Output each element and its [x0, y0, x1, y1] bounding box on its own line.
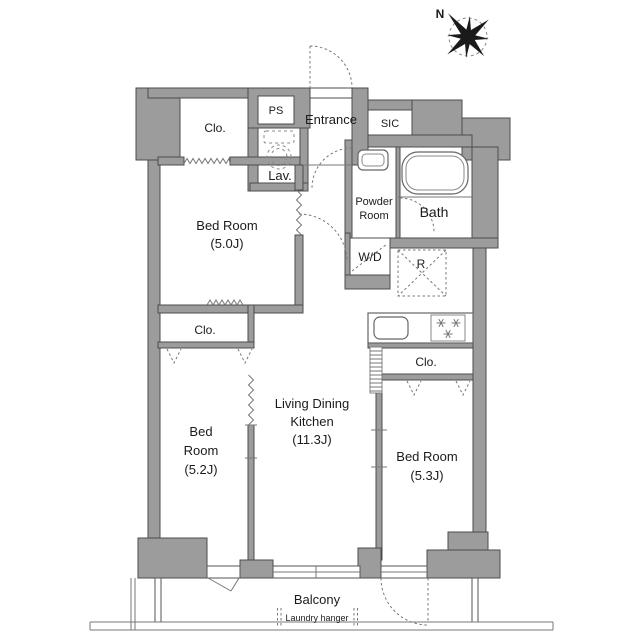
label-lavatory: Lav.	[268, 168, 292, 183]
label-laundry-hanger: Laundry hanger	[285, 613, 348, 623]
label-bedroom2-size: (5.2J)	[184, 462, 217, 477]
wall-segment	[158, 157, 184, 165]
compass-rose: N	[425, 0, 510, 79]
wall-segment	[295, 235, 303, 313]
kitchen-sink	[374, 317, 408, 339]
label-ldk-line1: Living Dining	[275, 396, 349, 411]
entrance-door-arc	[310, 46, 352, 88]
balcony-side-wall-left	[155, 578, 161, 622]
wall-segment	[472, 147, 498, 248]
wall-segment	[240, 560, 273, 578]
label-ldk-line2: Kitchen	[290, 414, 333, 429]
wall-segment	[368, 135, 472, 147]
label-closet-right: Clo.	[415, 355, 436, 369]
label-bedroom1-size: (5.0J)	[210, 236, 243, 251]
wall-segment	[138, 538, 207, 578]
wall-segment	[390, 238, 498, 248]
wall-segment	[396, 147, 400, 238]
wall-segment	[448, 532, 488, 550]
wall-segment	[148, 160, 160, 578]
wall-segment	[382, 374, 473, 380]
wall-segment	[427, 550, 500, 578]
label-bedroom3-name: Bed Room	[396, 449, 457, 464]
bedroom2-door-hatch	[249, 375, 254, 425]
bedroom1-door-arc	[299, 214, 347, 262]
toilet-tank	[264, 131, 294, 143]
label-pipe-space: PS	[269, 105, 284, 117]
wall-segment	[136, 88, 180, 160]
label-closet-mid-left: Clo.	[194, 323, 215, 337]
label-ldk-size: (11.3J)	[292, 432, 332, 447]
wall-segment	[376, 393, 382, 560]
bedroom1-bottom-hatch	[207, 300, 243, 305]
label-bath: Bath	[420, 204, 449, 220]
kitchen-counter-icon	[368, 313, 473, 343]
wall-segment	[295, 165, 303, 190]
label-bedroom3-size: (5.3J)	[410, 468, 443, 483]
label-closet-top-left: Clo.	[204, 121, 225, 135]
label-balcony: Balcony	[294, 592, 341, 607]
balcony-door-arc	[381, 578, 428, 625]
bedroom1-door-hatch	[297, 190, 302, 235]
wall-segment	[345, 275, 390, 289]
wall-segment	[473, 248, 486, 578]
sink-icon	[358, 150, 388, 170]
bathtub-outer	[402, 152, 468, 194]
entrance-door-leaf	[310, 88, 352, 98]
wall-segment	[368, 100, 412, 110]
label-powder-room-2: Room	[359, 210, 388, 222]
compass-north-label: N	[436, 7, 445, 21]
closet2-fold-marks	[167, 349, 252, 363]
label-refrigerator: R	[417, 257, 426, 271]
floor-plan-svg: N Clo. PS Entrance SIC Lav. Powder Room …	[0, 0, 640, 639]
closet3-fold-marks	[407, 381, 470, 395]
label-bedroom1-name: Bed Room	[196, 218, 257, 233]
window-bedroom2	[207, 566, 240, 578]
floor-plan-image: N Clo. PS Entrance SIC Lav. Powder Room …	[0, 0, 640, 639]
label-bedroom2-line1: Bed	[189, 424, 212, 439]
wall-segment	[230, 157, 303, 165]
ldk-bedroom3-hatch	[370, 347, 382, 393]
hatch-box	[370, 347, 382, 393]
wall-segment	[248, 425, 254, 560]
wall-segment	[345, 140, 352, 238]
closet1-accordion	[184, 159, 230, 164]
label-washer-dryer: W/D	[358, 250, 382, 264]
wall-segment	[158, 305, 303, 313]
label-shoe-closet: SIC	[381, 118, 399, 130]
wall-segment	[158, 342, 254, 348]
label-entrance: Entrance	[305, 112, 357, 127]
bathtub-icon	[398, 152, 472, 197]
label-bedroom2-line2: Room	[184, 443, 219, 458]
window-bedroom2-opening-mark	[208, 578, 239, 591]
wall-segment	[368, 343, 473, 348]
balcony-side-wall-right	[472, 578, 478, 622]
wall-segment	[358, 548, 381, 578]
balcony-railing	[90, 622, 553, 630]
label-powder-room-1: Powder	[355, 196, 393, 208]
